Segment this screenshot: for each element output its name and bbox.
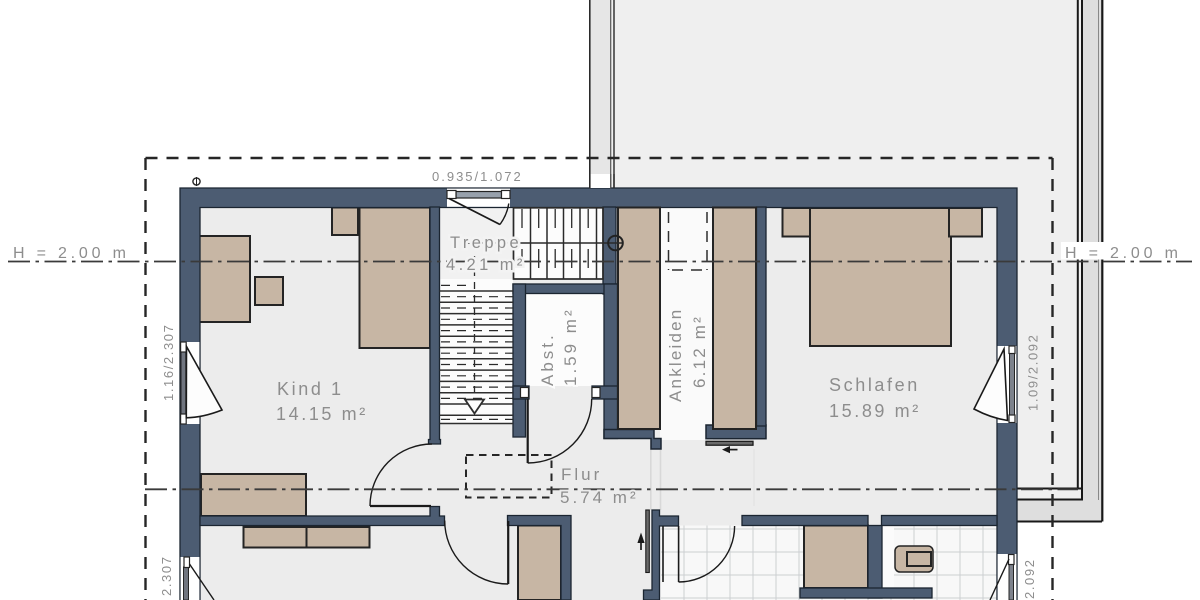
- svg-text:H = 2.00 m: H = 2.00 m: [13, 245, 130, 262]
- svg-text:1.09/2.092: 1.09/2.092: [1026, 334, 1041, 411]
- svg-text:Ankleiden: Ankleiden: [666, 308, 685, 402]
- svg-text:Treppe: Treppe: [450, 234, 522, 252]
- svg-text:Flur: Flur: [561, 465, 602, 484]
- svg-text:4.21 m²: 4.21 m²: [446, 256, 526, 274]
- svg-text:Abst.: Abst.: [538, 332, 557, 386]
- svg-text:5.74 m²: 5.74 m²: [560, 488, 639, 507]
- svg-text:1.59 m²: 1.59 m²: [561, 307, 580, 386]
- svg-text:15.89 m²: 15.89 m²: [829, 401, 921, 421]
- svg-text:1.16/2.307: 1.16/2.307: [161, 324, 176, 401]
- svg-text:0.935/1.072: 0.935/1.072: [432, 169, 523, 184]
- svg-text:2.307: 2.307: [159, 555, 174, 596]
- svg-text:14.15 m²: 14.15 m²: [276, 404, 368, 424]
- svg-text:Schlafen: Schlafen: [829, 375, 920, 395]
- svg-text:6.12 m²: 6.12 m²: [690, 315, 709, 388]
- svg-text:2.092: 2.092: [1022, 558, 1037, 599]
- svg-text:Kind 1: Kind 1: [277, 379, 344, 399]
- svg-text:H = 2.00 m: H = 2.00 m: [1065, 245, 1182, 262]
